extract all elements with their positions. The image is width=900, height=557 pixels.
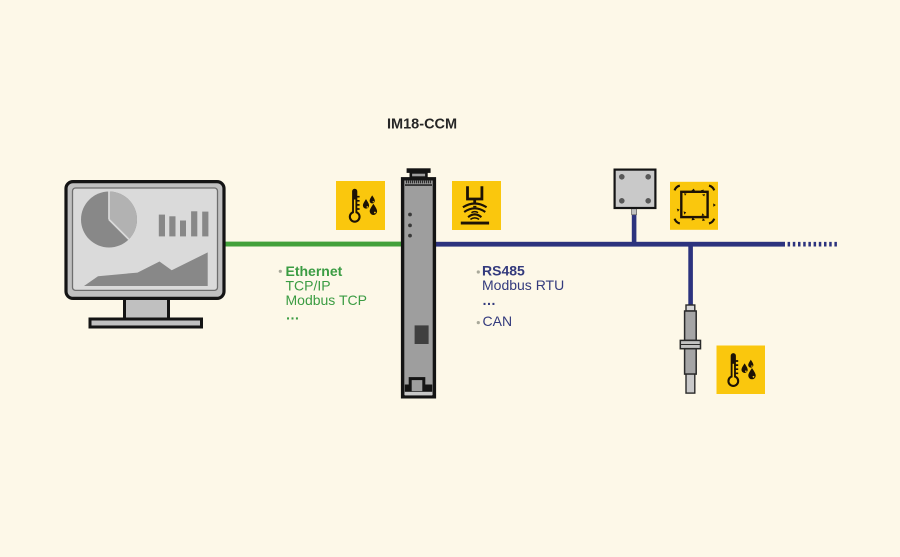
svg-text:CAN: CAN	[483, 313, 513, 329]
svg-text:Modbus RTU: Modbus RTU	[482, 277, 564, 293]
svg-text:Ethernet: Ethernet	[286, 263, 343, 279]
svg-text:TCP/IP: TCP/IP	[286, 278, 331, 294]
svg-text:…: …	[286, 306, 301, 322]
svg-text:…: …	[482, 292, 497, 308]
svg-text:IM18-CCM: IM18-CCM	[387, 116, 457, 132]
